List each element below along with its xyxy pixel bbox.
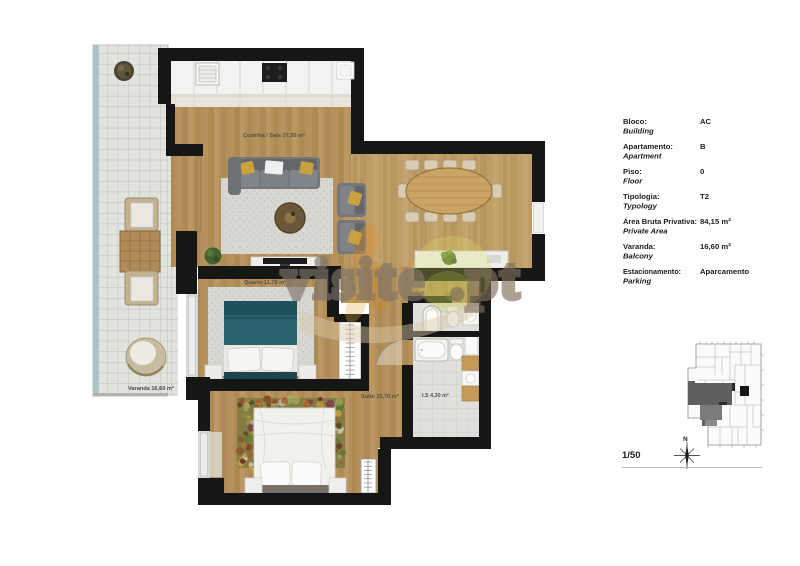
svg-text:Private Area: Private Area	[623, 227, 668, 236]
svg-text:Typology: Typology	[623, 202, 658, 211]
svg-text:Área Bruta Privativa:: Área Bruta Privativa:	[623, 217, 697, 226]
svg-text:Estacionamento:: Estacionamento:	[623, 267, 681, 276]
svg-text:Quarto 11,70 m²: Quarto 11,70 m²	[244, 279, 286, 286]
svg-text:Cozinha / Sala 37,55 m²: Cozinha / Sala 37,55 m²	[243, 132, 305, 139]
svg-text:Bloco:: Bloco:	[623, 117, 647, 126]
svg-text:Floor: Floor	[623, 177, 643, 186]
svg-text:Apartment: Apartment	[622, 152, 662, 161]
svg-text:84,15 m²: 84,15 m²	[700, 217, 731, 226]
svg-text:N: N	[683, 436, 688, 443]
svg-text:Suite 15,70 m²: Suite 15,70 m²	[361, 393, 399, 400]
svg-text:16,60 m²: 16,60 m²	[700, 242, 731, 251]
svg-text:Parking: Parking	[623, 277, 652, 286]
svg-text:B: B	[700, 142, 706, 151]
svg-text:I.S 4,30 m²: I.S 4,30 m²	[422, 393, 449, 399]
svg-text:Building: Building	[623, 127, 654, 136]
svg-text:visite: visite	[282, 248, 427, 311]
svg-text:Varanda:: Varanda:	[623, 242, 655, 251]
svg-text:Apartamento:: Apartamento:	[623, 142, 673, 151]
svg-text:Aparcamento: Aparcamento	[700, 267, 749, 276]
svg-text:Piso:: Piso:	[623, 167, 642, 176]
svg-text:AC: AC	[700, 117, 712, 126]
svg-text:0: 0	[700, 167, 704, 176]
svg-text:Varanda 16,60 m²: Varanda 16,60 m²	[128, 385, 174, 392]
svg-text:T2: T2	[700, 192, 709, 201]
svg-text:Tipologia:: Tipologia:	[623, 192, 660, 201]
svg-text:Balcony: Balcony	[623, 252, 654, 261]
svg-text:1/50: 1/50	[622, 450, 641, 461]
svg-text:.pt: .pt	[450, 248, 521, 311]
